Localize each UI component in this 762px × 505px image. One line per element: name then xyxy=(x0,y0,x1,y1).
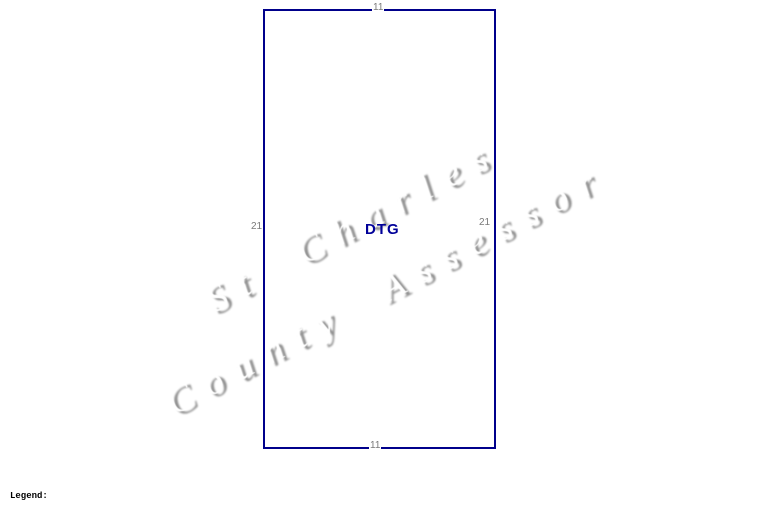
dimension-bottom: 11 xyxy=(369,441,381,451)
dimension-left: 21 xyxy=(251,222,262,232)
legend-title: Legend: xyxy=(10,489,128,504)
building-label: DTG xyxy=(365,221,400,238)
legend: Legend: DTG:DETACHED GARAGE xyxy=(10,459,128,505)
parcel-sketch-canvas: St Charles County Assessor 11 11 21 21 D… xyxy=(0,0,762,505)
dimension-right: 21 xyxy=(479,218,490,228)
dimension-top: 11 xyxy=(372,3,384,13)
